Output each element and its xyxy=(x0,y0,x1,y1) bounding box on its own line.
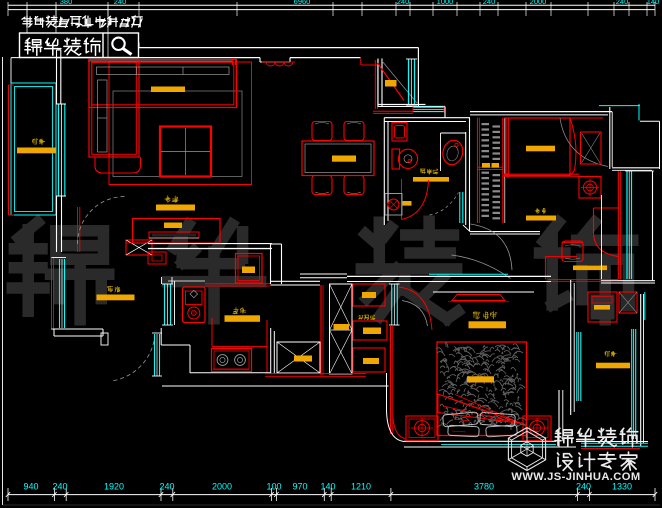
svg-text:140: 140 xyxy=(320,482,335,492)
svg-text:1000: 1000 xyxy=(437,0,454,6)
svg-text:6960: 6960 xyxy=(294,0,311,6)
svg-text:240: 240 xyxy=(616,0,629,6)
svg-text:240: 240 xyxy=(159,482,174,492)
svg-text:970: 970 xyxy=(292,482,307,492)
svg-text:2000: 2000 xyxy=(530,0,547,6)
svg-text:240: 240 xyxy=(114,0,127,6)
svg-text:240: 240 xyxy=(483,0,496,6)
svg-text:240: 240 xyxy=(52,482,67,492)
svg-text:100: 100 xyxy=(266,482,281,492)
svg-text:1920: 1920 xyxy=(104,482,124,492)
svg-text:940: 940 xyxy=(23,482,38,492)
svg-text:140: 140 xyxy=(647,0,660,6)
svg-text:240: 240 xyxy=(576,482,591,492)
svg-text:380: 380 xyxy=(60,0,73,6)
svg-text:WWW.JS-JINHUA.COM: WWW.JS-JINHUA.COM xyxy=(511,471,640,483)
svg-text:3780: 3780 xyxy=(474,482,494,492)
svg-text:240: 240 xyxy=(397,0,410,6)
svg-text:1210: 1210 xyxy=(351,482,371,492)
svg-text:1330: 1330 xyxy=(612,482,632,492)
svg-text:2000: 2000 xyxy=(212,482,232,492)
